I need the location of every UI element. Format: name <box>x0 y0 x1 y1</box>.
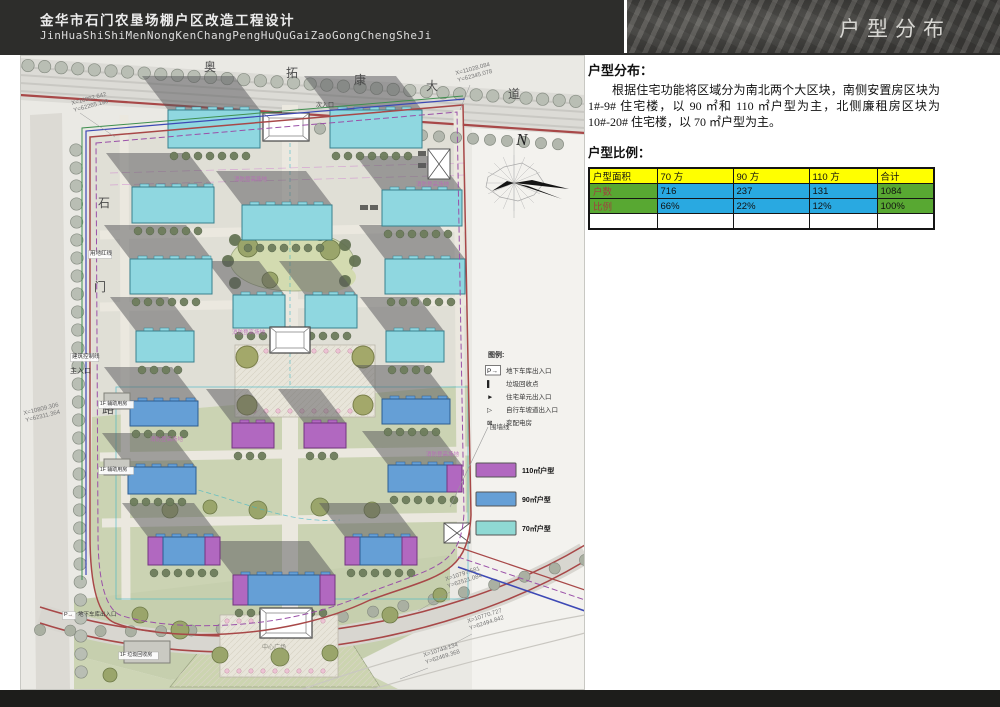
project-title-cn: 金华市石门农垦场棚户区改造工程设计 <box>40 9 295 29</box>
map-label: 主入口 <box>70 366 91 375</box>
header-band: 金华市石门农垦场棚户区改造工程设计 JinHuaShiShiMenNongKen… <box>0 0 1000 55</box>
map-label: 消防登高场地 <box>234 175 268 183</box>
table-empty-cell <box>809 214 877 230</box>
legend-label: 住宅单元出入口 <box>506 392 552 401</box>
map-label: P→ <box>64 612 73 618</box>
map-label: 消防登高场地 <box>150 435 184 443</box>
map-label: 拓 <box>286 66 298 80</box>
table-value-cell: 716 <box>657 184 733 199</box>
map-label: 1F 辅助用房 <box>100 400 127 407</box>
site-plan-map: 11121013奥拓康大道石门路NX=10962.642Y=62265.190X… <box>20 55 585 690</box>
legend-symbol: ▌ <box>487 380 492 388</box>
project-title-pinyin: JinHuaShiShiMenNongKenChangPengHuQuGaiZa… <box>40 29 432 42</box>
table-value-cell: 12% <box>809 199 877 214</box>
panel-paragraph: 根据住宅功能将区域分为南北两个大区块，南侧安置房区块为 1#-9# 住宅楼，以 … <box>588 82 940 130</box>
legend-label: 变配电房 <box>506 418 532 427</box>
map-label: 康 <box>354 72 366 87</box>
table-header-cell: 110 方 <box>809 168 877 184</box>
map-label: 建筑控制线 <box>72 352 100 360</box>
table-header-cell: 户型面积 <box>589 168 657 184</box>
legend-symbol: ▷ <box>487 407 492 414</box>
unit-distribution-panel: 户型分布： 根据住宅功能将区域分为南北两个大区块，南侧安置房区块为 1#-9# … <box>588 60 940 230</box>
table-value-cell: 131 <box>809 184 877 199</box>
table-header-cell: 70 方 <box>657 168 733 184</box>
table-value-cell: 22% <box>733 199 809 214</box>
table-value-cell: 237 <box>733 184 809 199</box>
map-label: 消防登高场地 <box>232 328 266 336</box>
map-label: 石 <box>98 196 110 210</box>
legend-symbol: ⊠ <box>487 420 492 427</box>
map-label: 中心广场 <box>262 643 286 651</box>
panel-heading: 户型分布： <box>588 60 940 79</box>
unit-type-label: 110㎡户型 <box>522 466 554 475</box>
footer-band <box>0 690 1000 707</box>
table-value-cell: 100% <box>877 199 934 214</box>
map-label: 地下车库出入口 <box>78 610 117 618</box>
table-value-cell: 1084 <box>877 184 934 199</box>
map-label: 次入口 <box>316 101 334 109</box>
table-empty-cell <box>657 214 733 230</box>
map-label: 消防登高场地 <box>416 180 450 188</box>
map-label: 大 <box>426 79 438 93</box>
ratio-heading: 户型比例： <box>588 142 940 161</box>
section-title: 户型分布 <box>839 13 951 43</box>
table-empty-cell <box>733 214 809 230</box>
design-sheet: 金华市石门农垦场棚户区改造工程设计 JinHuaShiShiMenNongKen… <box>0 0 1000 707</box>
map-label: 门 <box>94 279 106 294</box>
legend-label: 地下车库出入口 <box>506 366 552 375</box>
table-row-label: 户数 <box>589 184 657 199</box>
header-relief-image: 户型分布 <box>624 0 1000 53</box>
unit-ratio-table: 户型面积70 方90 方110 方合计户数7162371311084比例66%2… <box>588 167 935 230</box>
legend-symbol: ► <box>487 394 493 401</box>
legend-symbol: P→ <box>487 368 498 375</box>
map-label: 用地红线 <box>90 249 113 257</box>
table-empty-cell <box>589 214 657 230</box>
table-row-label: 比例 <box>589 199 657 214</box>
table-empty-cell <box>877 214 934 230</box>
map-label: 1F 辅助用房 <box>100 466 127 473</box>
svg-text:图例:: 图例: <box>488 350 504 359</box>
unit-type-label: 90㎡户型 <box>522 495 551 504</box>
legend-label: 垃圾回收点 <box>506 379 539 388</box>
unit-type-label: 70㎡户型 <box>522 524 551 533</box>
legend-label: 自行车坡道出入口 <box>506 405 558 414</box>
map-label: N <box>515 130 529 149</box>
map-label: 奥 <box>204 60 216 74</box>
map-label: 消防登高场地 <box>426 450 460 458</box>
map-label: 道 <box>508 87 520 101</box>
map-label: 1F 垃圾回收房 <box>120 651 152 658</box>
table-header-cell: 合计 <box>877 168 934 184</box>
table-value-cell: 66% <box>657 199 733 214</box>
table-header-cell: 90 方 <box>733 168 809 184</box>
